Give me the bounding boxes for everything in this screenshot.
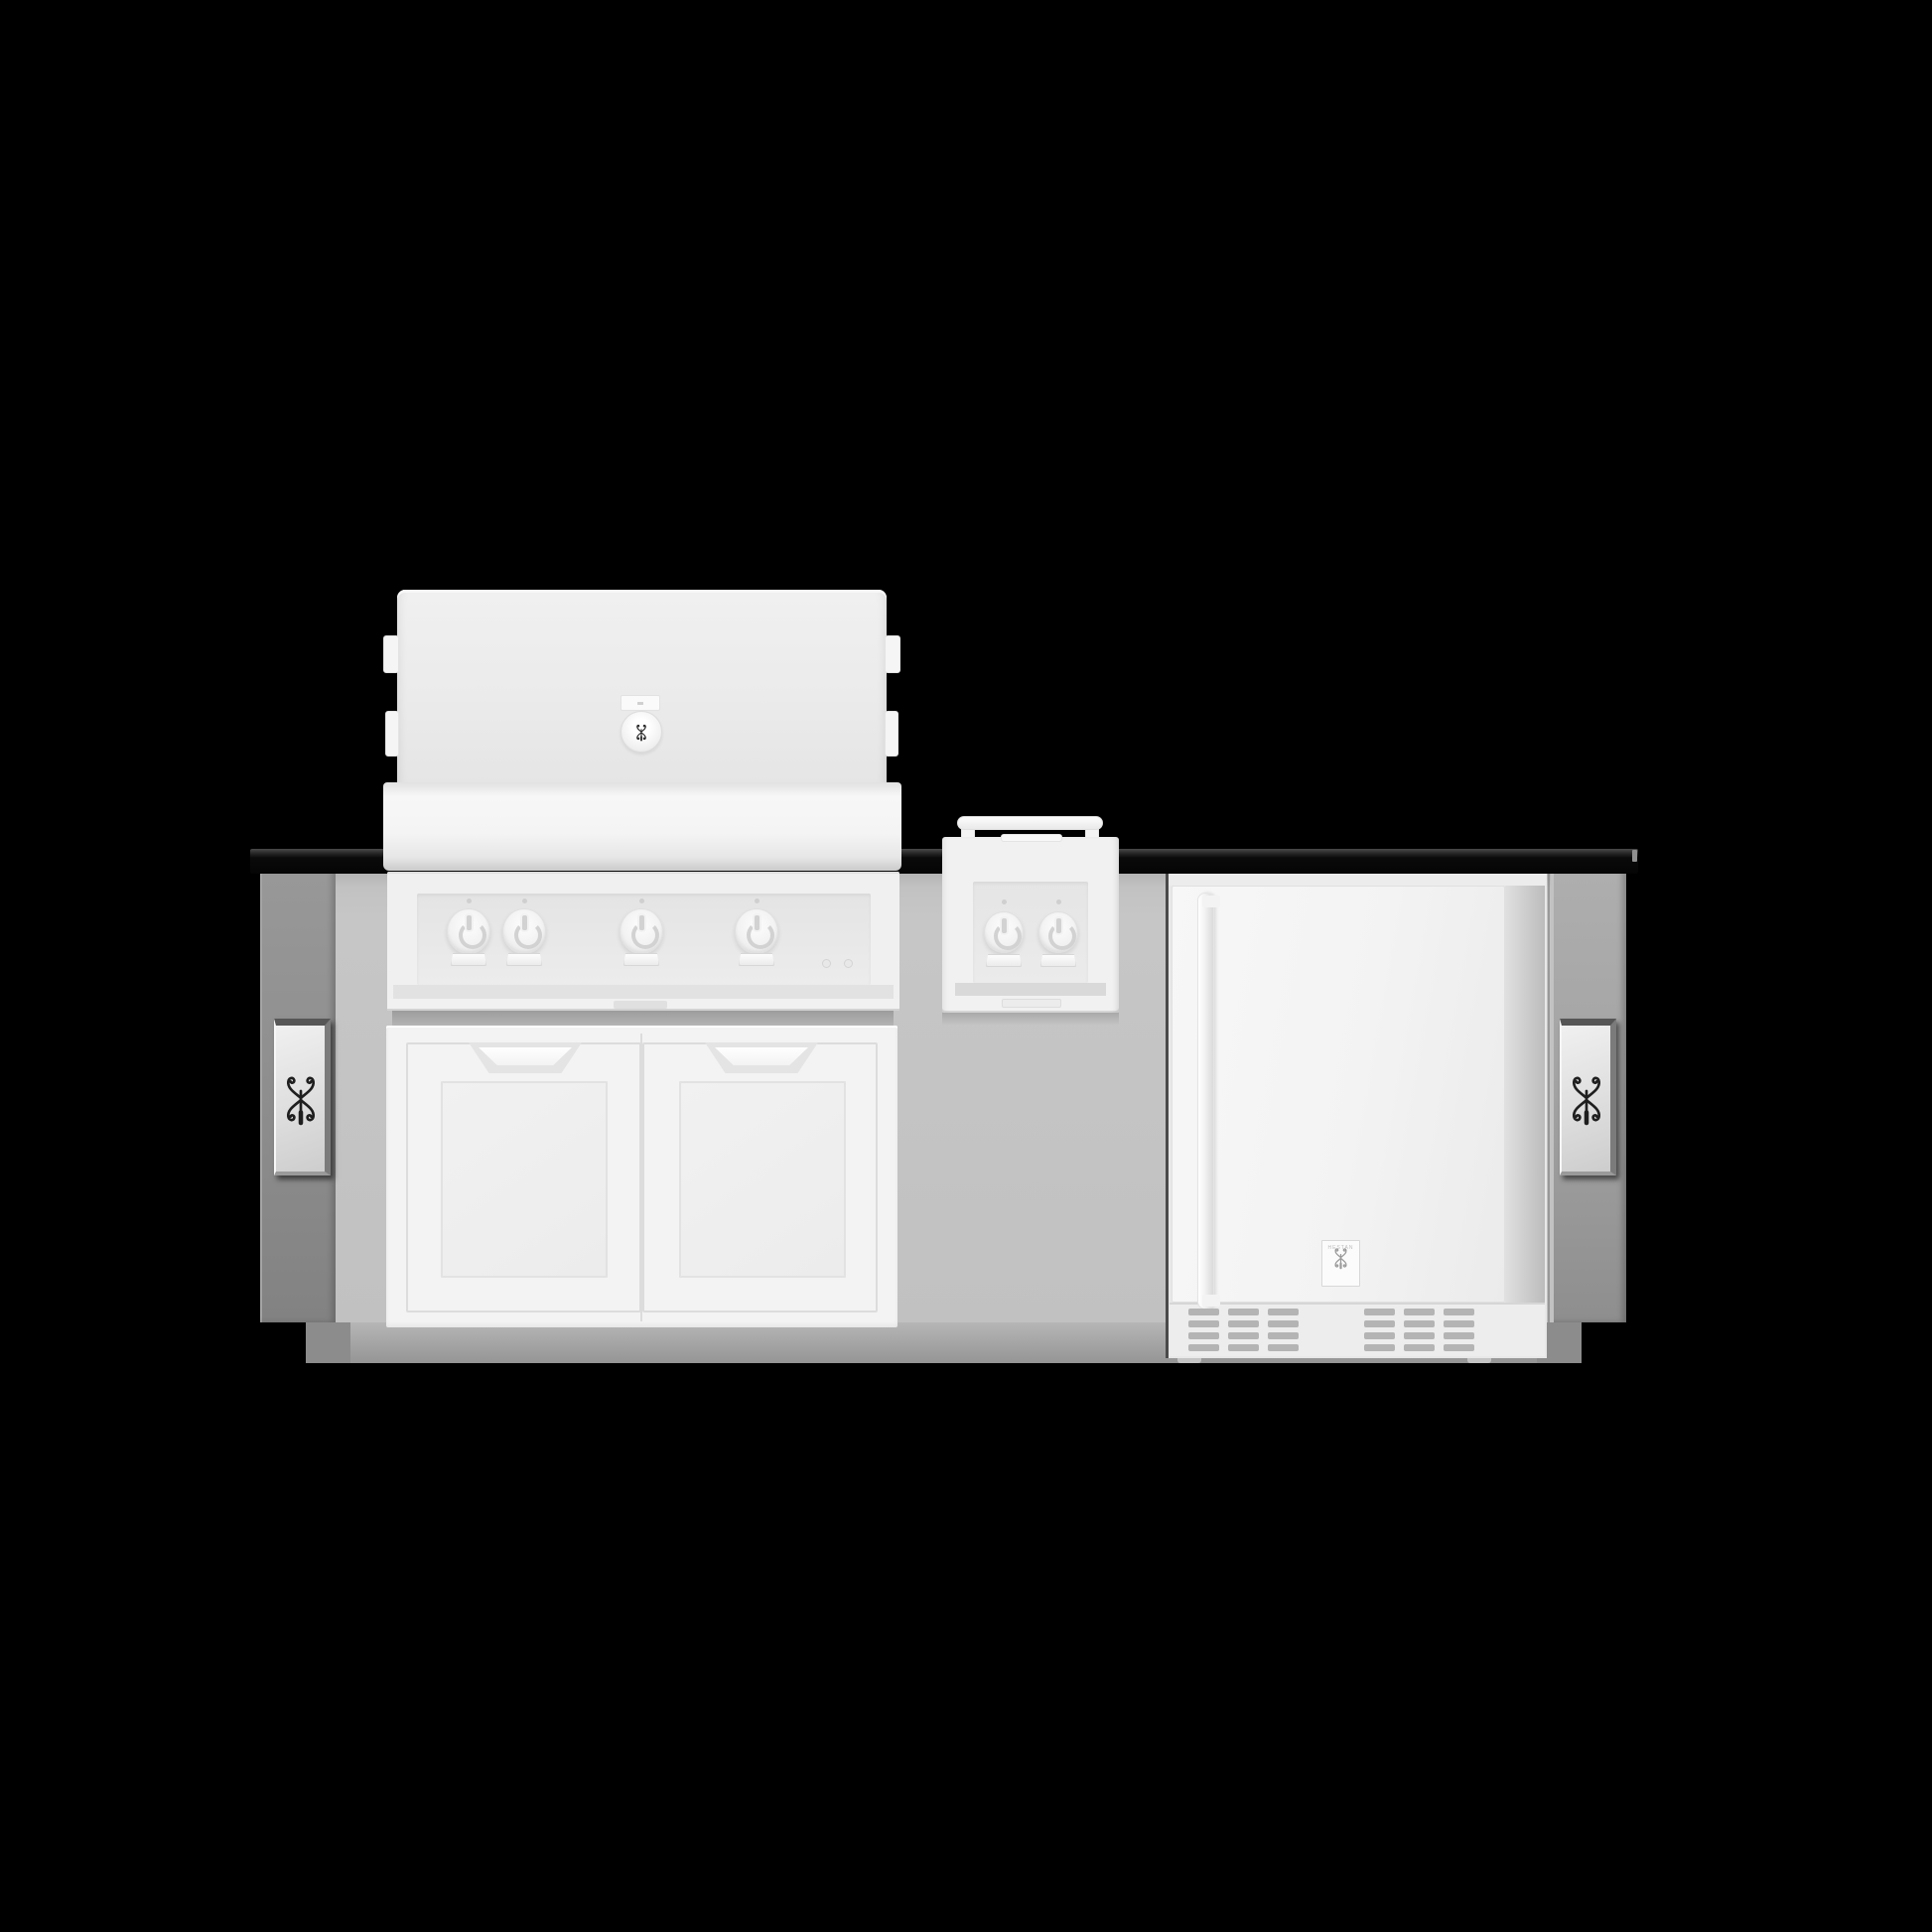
grill-storage-doors <box>386 1026 897 1327</box>
refrigerator-vent-slot <box>1404 1332 1435 1339</box>
grill-under-panel-shadow <box>392 1011 894 1026</box>
refrigerator-vent-slot <box>1364 1320 1395 1327</box>
hestan-logo-plaque-left <box>274 1019 331 1175</box>
grill-hood-nameplate <box>621 695 660 711</box>
refrigerator-vent-slot <box>1188 1332 1219 1339</box>
grill-burner-knob <box>502 908 546 954</box>
side-burner-knob <box>984 911 1024 953</box>
hestan-logo-plaque-right <box>1560 1019 1616 1175</box>
side-burner-body <box>942 837 1119 1013</box>
grill-burner-knob-label-plate <box>506 953 542 966</box>
grill-burner-knob <box>447 908 490 954</box>
hestan-monogram-icon <box>1332 1246 1349 1270</box>
refrigerator-vent-slot <box>1268 1344 1299 1351</box>
grill-hood-hinge-icon <box>885 711 898 757</box>
grill-hood-hinge-icon <box>885 635 900 673</box>
refrigerator-vent-slot <box>1188 1309 1219 1315</box>
grill-burner-indicator-dot <box>755 898 759 903</box>
grill-hood-hinge-icon <box>385 711 399 757</box>
grill-hood <box>397 590 887 784</box>
side-burner-lid-handle <box>957 816 1103 830</box>
refrigerator-vent-slot <box>1444 1320 1474 1327</box>
island-left-foot <box>306 1322 350 1363</box>
grill-panel-lip <box>393 985 894 999</box>
refrigerator-handle <box>1197 893 1214 1310</box>
hestan-monogram-icon <box>1567 1071 1606 1127</box>
refrigerator-vent-slot <box>1268 1332 1299 1339</box>
refrigerator-top-rail <box>1169 874 1547 886</box>
grill-burner-knob <box>620 908 663 954</box>
refrigerator-brand-badge: HESTAN <box>1321 1240 1360 1287</box>
hestan-monogram-icon <box>634 723 648 742</box>
storage-door-panel-left <box>441 1081 608 1278</box>
refrigerator-vent-slot <box>1228 1332 1259 1339</box>
side-burner-shadow <box>942 1013 1119 1026</box>
refrigerator-side-reveal <box>1505 886 1545 1303</box>
grill-ignition-light <box>844 959 853 968</box>
side-burner-indicator-dot <box>1002 899 1007 904</box>
grill-burner-knob-label-plate <box>623 953 659 966</box>
grill-burner-knob <box>735 908 778 954</box>
refrigerator-vent-slot <box>1364 1344 1395 1351</box>
grill-hood-handle-band <box>383 782 901 871</box>
storage-door-panel-right <box>679 1081 846 1278</box>
refrigerator-vent-slot <box>1188 1344 1219 1351</box>
refrigerator-vent-slot <box>1268 1309 1299 1315</box>
refrigerator-vent-slot <box>1404 1344 1435 1351</box>
refrigerator-vent-slot <box>1228 1320 1259 1327</box>
refrigerator-vent-slot <box>1268 1320 1299 1327</box>
refrigerator-vent-slot <box>1364 1309 1395 1315</box>
side-burner-knob <box>1038 911 1078 953</box>
refrigerator-vent-slot <box>1188 1320 1219 1327</box>
hestan-monogram-icon <box>281 1071 321 1127</box>
grill-burner-knob-label-plate <box>739 953 774 966</box>
refrigerator-vent-slot <box>1444 1309 1474 1315</box>
refrigerator-vent-slot <box>1444 1344 1474 1351</box>
grease-tray-handle <box>614 1001 667 1009</box>
refrigerator-vent-slot <box>1364 1332 1395 1339</box>
refrigerator-vent-slot <box>1404 1309 1435 1315</box>
grill-hood-hinge-icon <box>383 635 399 673</box>
refrigerator-vent-slot <box>1228 1309 1259 1315</box>
side-burner-tray-handle <box>1002 999 1061 1008</box>
grill-burner-indicator-dot <box>467 898 472 903</box>
side-burner-knob-label-plate <box>1040 954 1076 967</box>
grill-ignition-light <box>822 959 831 968</box>
side-burner-lid-seam <box>1001 834 1062 842</box>
grill-burner-indicator-dot <box>639 898 644 903</box>
refrigerator-vent-grille <box>1170 1303 1545 1356</box>
refrigerator-vent-slot <box>1444 1332 1474 1339</box>
refrigerator: HESTAN <box>1166 874 1547 1358</box>
countertop-end-cap <box>1632 850 1637 862</box>
grill-burner-indicator-dot <box>522 898 527 903</box>
refrigerator-door: HESTAN <box>1172 886 1505 1303</box>
cabinet-seam <box>1548 874 1550 1322</box>
refrigerator-vent-slot <box>1228 1344 1259 1351</box>
grill-hood-medallion <box>621 711 662 753</box>
side-burner-indicator-dot <box>1056 899 1061 904</box>
product-image-canvas: HESTAN <box>0 0 1932 1932</box>
grill-burner-knob-label-plate <box>451 953 486 966</box>
side-burner-lower-band <box>955 983 1106 996</box>
side-burner-knob-label-plate <box>986 954 1022 967</box>
refrigerator-vent-slot <box>1404 1320 1435 1327</box>
